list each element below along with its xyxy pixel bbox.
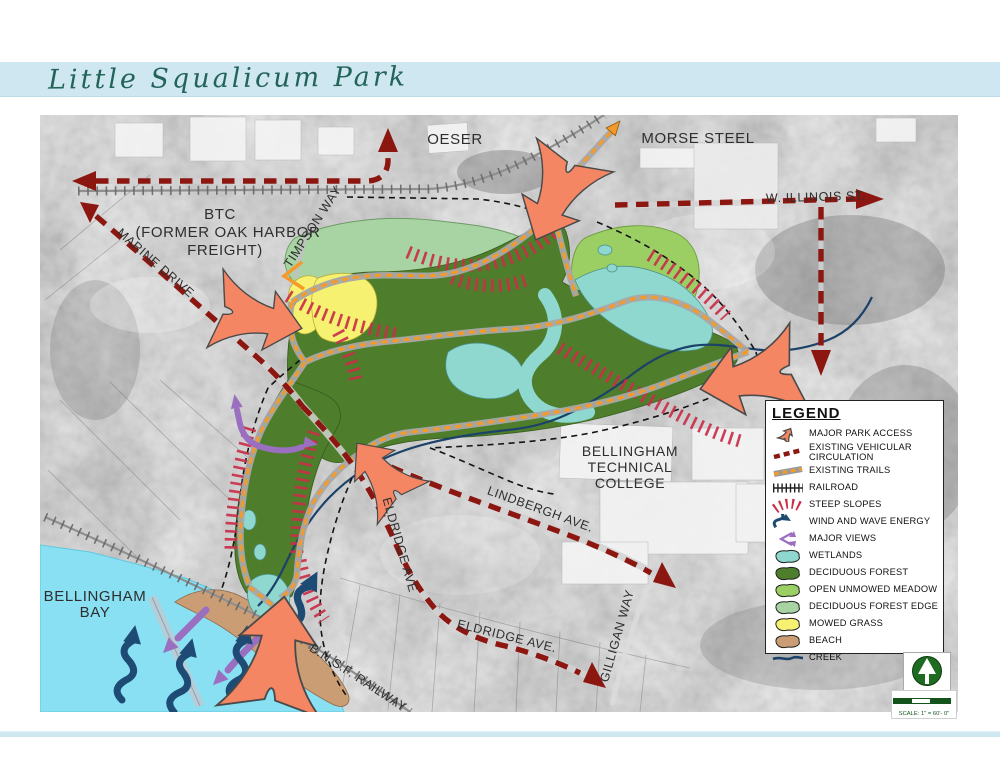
- scale-bar-graphic: [893, 697, 951, 705]
- meadow-swatch: [772, 582, 804, 598]
- legend-item-railroad: RAILROAD: [772, 480, 939, 496]
- beach-swatch: [772, 633, 804, 649]
- plan-sheet: Little Squalicum Park: [0, 0, 1000, 773]
- legend-item-park-access: MAJOR PARK ACCESS: [772, 426, 939, 442]
- wind-wave-icon: [772, 514, 804, 530]
- legend-label: MAJOR VIEWS: [809, 534, 876, 544]
- legend-label: EXISTING TRAILS: [809, 466, 890, 476]
- legend-item-trails: EXISTING TRAILS: [772, 463, 939, 479]
- mowed-grass-swatch: [772, 616, 804, 632]
- legend-item-deciduous-forest: DECIDUOUS FOREST: [772, 565, 939, 581]
- forest-edge-swatch: [772, 599, 804, 615]
- label-bay-1: BELLINGHAM: [44, 588, 147, 605]
- legend-label: WIND AND WAVE ENERGY: [809, 517, 930, 527]
- scale-bar: SCALE: 1" = 60'- 0": [891, 690, 957, 719]
- legend-item-vehicular: EXISTING VEHICULAR CIRCULATION: [772, 443, 939, 462]
- major-views-icon: [772, 531, 804, 547]
- legend-title: LEGEND: [772, 405, 939, 422]
- legend-label: MAJOR PARK ACCESS: [809, 429, 912, 439]
- scale-text: SCALE: 1" = 60'- 0": [893, 711, 955, 717]
- wetlands-swatch: [772, 548, 804, 564]
- creek-swatch: [772, 650, 804, 666]
- legend-label: CREEK: [809, 653, 842, 663]
- orange-dashed-icon: [772, 463, 804, 479]
- label-btc-2: (FORMER OAK HARBOR: [136, 224, 321, 241]
- legend-label: OPEN UNMOWED MEADOW: [809, 585, 937, 595]
- legend-label: BEACH: [809, 636, 842, 646]
- legend-box: LEGEND MAJOR PARK ACCESS EXISTING VEHICU…: [765, 400, 944, 654]
- forest-swatch: [772, 565, 804, 581]
- label-belltech-2: TECHNICAL: [588, 459, 673, 475]
- label-belltech-3: COLLEGE: [595, 475, 665, 491]
- legend-label: STEEP SLOPES: [809, 500, 882, 510]
- north-arrow-icon: [907, 655, 947, 688]
- legend-label: WETLANDS: [809, 551, 862, 561]
- label-bay-2: BAY: [80, 604, 111, 621]
- label-btc-3: FREIGHT): [187, 242, 263, 259]
- legend-label: MOWED GRASS: [809, 619, 883, 629]
- park-access-icon: [772, 426, 804, 442]
- label-btc-1: BTC: [204, 206, 236, 223]
- legend-label: RAILROAD: [809, 483, 858, 493]
- legend-item-wetlands: WETLANDS: [772, 548, 939, 564]
- legend-item-mowed-grass: MOWED GRASS: [772, 616, 939, 632]
- red-dashed-icon: [772, 445, 804, 461]
- legend-item-major-views: MAJOR VIEWS: [772, 531, 939, 547]
- legend-item-wind-wave: WIND AND WAVE ENERGY: [772, 514, 939, 530]
- legend-item-forest-edge: DECIDUOUS FOREST EDGE: [772, 599, 939, 615]
- label-belltech-1: BELLINGHAM: [582, 443, 678, 459]
- label-morse-steel: MORSE STEEL: [641, 130, 754, 147]
- steep-slope-icon: [772, 497, 804, 513]
- legend-item-meadow: OPEN UNMOWED MEADOW: [772, 582, 939, 598]
- label-oeser: OESER: [427, 131, 483, 148]
- legend-label: DECIDUOUS FOREST: [809, 568, 908, 578]
- north-arrow: [903, 652, 951, 691]
- legend-label: EXISTING VEHICULAR CIRCULATION: [809, 443, 939, 462]
- railroad-icon: [772, 480, 804, 496]
- legend-label: DECIDUOUS FOREST EDGE: [809, 602, 938, 612]
- label-w-illinois: W. ILLINOIS ST.: [766, 189, 866, 206]
- legend-item-beach: BEACH: [772, 633, 939, 649]
- legend-item-steep-slopes: STEEP SLOPES: [772, 497, 939, 513]
